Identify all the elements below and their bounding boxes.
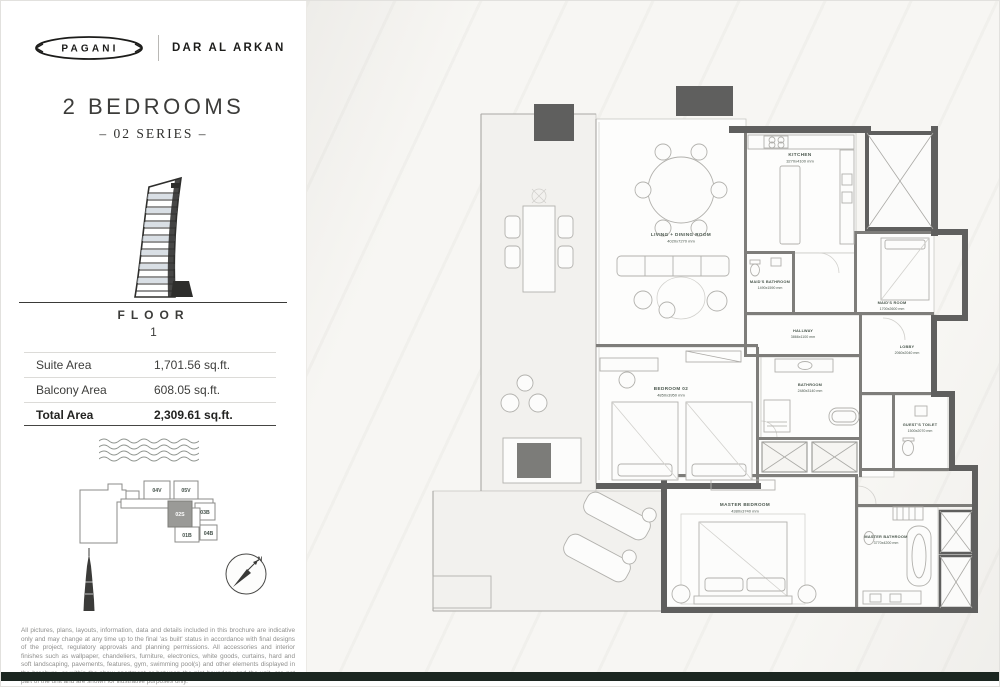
- total-area-value: 2,309.61 sq.ft.: [154, 408, 274, 422]
- compass-icon: N: [224, 552, 268, 601]
- beanbag-2: [529, 394, 547, 412]
- terrace-table: [517, 443, 551, 478]
- table-row-suite-area: Suite Area 1,701.56 sq.ft.: [24, 353, 276, 378]
- dims-guest-toilet: 1500x2070 mm: [908, 429, 933, 433]
- label-maids-bathroom: MAID'S BATHROOM: [750, 279, 790, 284]
- master-pouf-2: [798, 585, 816, 603]
- site-plan: 04V 05V 03B 01B 04B 02S: [76, 475, 221, 550]
- series-subtitle: – 02 SERIES –: [1, 126, 306, 142]
- headboard: [694, 596, 792, 604]
- room-corridor-top: [794, 253, 856, 315]
- partner-name: DAR AL ARKAN: [172, 42, 286, 54]
- label-guest-toilet: GUEST'S TOILET: [903, 422, 938, 427]
- label-bathroom: BATHROOM: [798, 382, 822, 387]
- label-kitchen: KITCHEN: [788, 152, 811, 157]
- unit-04v: 04V: [152, 488, 162, 494]
- dims-bathroom: 2480x3140 mm: [798, 389, 823, 393]
- burj-khalifa-icon: [79, 548, 99, 619]
- desk: [600, 358, 658, 371]
- unit-03b: 03B: [200, 510, 210, 516]
- pouf-1: [634, 291, 652, 309]
- unit-02s-highlighted: 02S: [175, 512, 185, 518]
- waves-icon: [99, 438, 199, 469]
- ground-line: [19, 302, 287, 303]
- dims-bedroom-02: 4850x3950 mm: [657, 393, 685, 398]
- room-kitchen: [746, 133, 856, 253]
- balcony-side: [481, 114, 596, 491]
- total-area-label: Total Area: [26, 408, 154, 422]
- pagani-logo: PAGANI: [33, 34, 145, 62]
- label-maids-room: MAID'S ROOM: [878, 300, 907, 305]
- dims-lobby: 2060x2040 mm: [895, 351, 920, 355]
- dims-master-bedroom: 4380x3740 mm: [731, 509, 759, 514]
- brand-row: PAGANI DAR AL ARKAN: [33, 34, 286, 62]
- floor-plan: LIVING + DINING ROOM 4020x7270 mm KITCHE…: [431, 86, 991, 626]
- maid-basin: [771, 258, 781, 266]
- pouf-2: [659, 302, 675, 318]
- dims-kitchen: 3270x4100 mm: [786, 159, 814, 164]
- maid-toilet: [751, 264, 760, 276]
- label-master-bathroom: MASTER BATHROOM: [864, 534, 907, 539]
- footer-bar: [1, 672, 1000, 681]
- label-lobby: LOBBY: [900, 344, 915, 349]
- area-table: Suite Area 1,701.56 sq.ft. Balcony Area …: [24, 352, 276, 427]
- label-master-bedroom: MASTER BEDROOM: [720, 502, 770, 507]
- desk-chair: [619, 372, 635, 388]
- pagani-logo-text: PAGANI: [61, 44, 118, 55]
- room-maids-bathroom: [746, 253, 794, 315]
- room-corridor-right: [861, 395, 894, 477]
- balcony-area-label: Balcony Area: [26, 383, 154, 397]
- dining-table: [648, 157, 714, 223]
- side-table: [517, 375, 533, 391]
- table-end-line: [24, 425, 276, 426]
- bath-vanity: [775, 359, 833, 372]
- dims-maids-bathroom: 1490x1590 mm: [758, 286, 783, 290]
- table-row-balcony-area: Balcony Area 608.05 sq.ft.: [24, 378, 276, 403]
- dims-living: 4020x7270 mm: [667, 239, 695, 244]
- room-lobby: [861, 315, 936, 395]
- label-bedroom-02: BEDROOM 02: [654, 386, 688, 391]
- suite-area-value: 1,701.56 sq.ft.: [154, 358, 274, 372]
- label-living: LIVING + DINING ROOM: [651, 232, 711, 237]
- outdoor-table: [523, 206, 555, 292]
- kitchen-island: [780, 166, 800, 244]
- suite-area-label: Suite Area: [26, 358, 154, 372]
- dims-maids-room: 1700x2600 mm: [880, 307, 905, 311]
- page-title: 2 BEDROOMS: [1, 94, 306, 120]
- guest-basin: [915, 406, 927, 416]
- floor-number: 1: [1, 325, 306, 339]
- unit-05v: 05V: [181, 488, 191, 494]
- brochure-page: LIVING + DINING ROOM 4020x7270 mm KITCHE…: [0, 0, 1000, 687]
- compass-north-label: N: [258, 557, 262, 563]
- master-pouf-1: [672, 585, 690, 603]
- table-row-total-area: Total Area 2,309.61 sq.ft.: [24, 403, 276, 427]
- armchair: [707, 291, 727, 311]
- floor-label: FLOOR: [1, 308, 306, 322]
- unit-04b: 04B: [204, 531, 214, 537]
- guest-wc: [903, 441, 914, 456]
- label-hallway: HALLWAY: [793, 328, 813, 333]
- dims-hallway: 3866x1100 mm: [791, 335, 816, 339]
- beanbag-1: [501, 394, 519, 412]
- dims-master-bathroom: 3770x4200 mm: [874, 541, 899, 545]
- brand-divider: [158, 35, 159, 61]
- unit-01b: 01B: [182, 533, 192, 539]
- building-icon: [109, 173, 201, 301]
- balcony-area-value: 608.05 sq.ft.: [154, 383, 274, 397]
- master-bathtub: [907, 526, 931, 586]
